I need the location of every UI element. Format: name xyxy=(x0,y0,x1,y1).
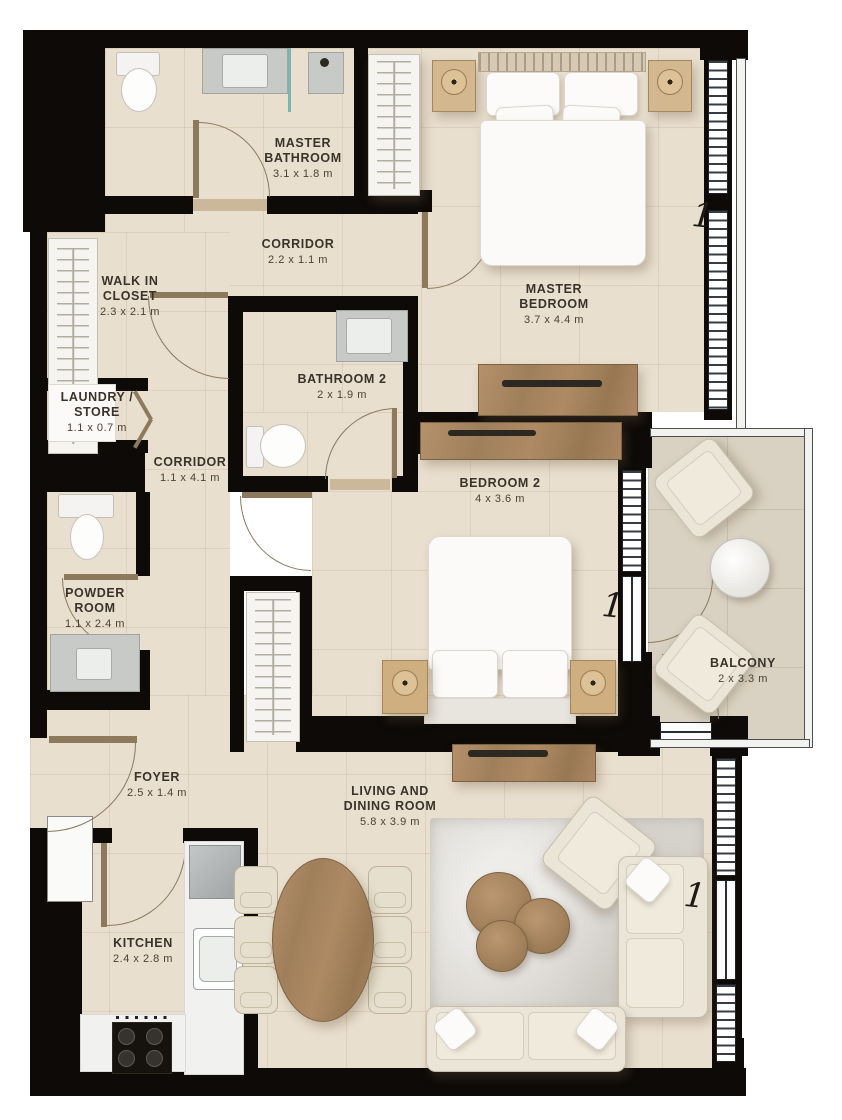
railing-balcony-top xyxy=(650,428,810,437)
label-corridor-main: CORRIDOR 1.1 x 4.1 m xyxy=(154,455,227,484)
wall-bottom-left-block xyxy=(30,896,82,1096)
wall-mbath-bottom-left xyxy=(105,196,193,214)
window-master-bedroom-upper xyxy=(708,60,728,194)
wardrobe-hall-closet xyxy=(246,592,300,742)
railing-right-master xyxy=(736,58,746,430)
room-dims: 2 x 1.9 m xyxy=(297,389,386,401)
bed-master-headboard xyxy=(478,52,646,72)
stove-knobs xyxy=(116,1016,168,1019)
room-name: MASTER BEDROOM xyxy=(504,282,604,312)
room-name: CORRIDOR xyxy=(262,237,335,252)
wall-powder-right-upper xyxy=(136,492,150,576)
window-master-bedroom-lower xyxy=(708,210,728,410)
window-living-lower xyxy=(716,984,736,1062)
room-dims: 2.2 x 1.1 m xyxy=(262,254,335,266)
room-dims: 3.7 x 4.4 m xyxy=(504,314,604,326)
dining-table xyxy=(272,858,374,1022)
window-bedroom2 xyxy=(622,470,642,572)
shower-head-icon xyxy=(320,58,329,67)
balcony-table xyxy=(710,538,770,598)
room-dims: 5.8 x 3.9 m xyxy=(333,816,447,828)
window-tag-master: 1 xyxy=(690,195,716,237)
toilet-bathroom2-bowl xyxy=(260,424,306,468)
lamp-master-right xyxy=(657,69,683,95)
label-master-bedroom: MASTER BEDROOM 3.7 x 4.4 m xyxy=(504,282,604,326)
sink-master xyxy=(222,54,268,88)
shower-glass xyxy=(288,48,291,112)
dining-chair-left-1 xyxy=(234,866,278,914)
tv-console-slab xyxy=(468,750,548,757)
dining-chair-right-2 xyxy=(368,916,412,964)
wall-closet-left xyxy=(230,576,244,752)
dining-chair-right-1 xyxy=(368,866,412,914)
room-name: BALCONY xyxy=(710,656,776,671)
room-dims: 1.1 x 0.7 m xyxy=(59,422,135,434)
wall-bathroom2-bottom-left xyxy=(228,476,328,492)
room-dims: 1.1 x 2.4 m xyxy=(56,618,134,630)
stove-burner-1 xyxy=(118,1028,135,1045)
label-master-bathroom: MASTER BATHROOM 3.1 x 1.8 m xyxy=(253,136,353,180)
room-dims: 1.1 x 4.1 m xyxy=(154,472,227,484)
dresser-master-tv xyxy=(502,380,602,387)
dresser-bedroom2-tv xyxy=(448,430,536,436)
dresser-master xyxy=(478,364,638,416)
dining-chair-right-3 xyxy=(368,966,412,1014)
wall-top-left-block xyxy=(23,30,105,232)
room-name: LAUNDRY / STORE xyxy=(59,390,135,420)
stove-burner-2 xyxy=(146,1028,163,1045)
room-name: BATHROOM 2 xyxy=(297,372,386,387)
window-tag-bedroom2: 1 xyxy=(600,585,626,627)
bed2-pillow-1 xyxy=(432,650,498,698)
sink-bathroom2 xyxy=(346,318,392,354)
room-name: MASTER BATHROOM xyxy=(253,136,353,166)
room-dims: 3.1 x 1.8 m xyxy=(253,168,353,180)
railing-balcony-right xyxy=(804,428,813,748)
coffee-table-lobe-3 xyxy=(476,920,528,972)
lamp-bed2-right xyxy=(580,670,606,696)
door-arc-bedroom2 xyxy=(240,496,311,571)
label-walk-in-closet: WALK IN CLOSET 2.3 x 2.1 m xyxy=(91,274,169,318)
wall-living-balcony-right xyxy=(710,716,748,756)
room-name: KITCHEN xyxy=(113,936,173,951)
label-balcony: BALCONY 2 x 3.3 m xyxy=(710,656,776,685)
room-name: FOYER xyxy=(127,770,187,785)
stove-burner-4 xyxy=(146,1050,163,1067)
room-dims: 2 x 3.3 m xyxy=(710,673,776,685)
wall-bottom xyxy=(230,1068,746,1096)
room-dims: 2.3 x 2.1 m xyxy=(91,306,169,318)
dresser-bedroom2 xyxy=(420,422,622,460)
label-bathroom2: BATHROOM 2 2 x 1.9 m xyxy=(297,372,386,401)
room-dims: 2.4 x 2.8 m xyxy=(113,953,173,965)
dining-chair-left-3 xyxy=(234,966,278,1014)
window-living-center-panel xyxy=(716,880,736,980)
label-foyer: FOYER 2.5 x 1.4 m xyxy=(127,770,187,799)
wall-powder-top-block xyxy=(47,450,145,492)
threshold-master-bathroom xyxy=(193,199,267,211)
wall-bathroom2-left xyxy=(228,296,243,492)
label-bedroom2: BEDROOM 2 4 x 3.6 m xyxy=(459,476,540,505)
lamp-bed2-left xyxy=(392,670,418,696)
threshold-bathroom2 xyxy=(330,479,390,490)
window-tag-living: 1 xyxy=(682,875,708,917)
room-name: WALK IN CLOSET xyxy=(91,274,169,304)
room-name: POWDER ROOM xyxy=(56,586,134,616)
label-living-dining: LIVING AND DINING ROOM 5.8 x 3.9 m xyxy=(333,784,447,828)
bed2-pillow-2 xyxy=(502,650,568,698)
door-entry xyxy=(49,736,137,743)
wall-top xyxy=(65,30,737,48)
kitchen-sink-basin xyxy=(199,936,237,982)
room-name: CORRIDOR xyxy=(154,455,227,470)
sink-powder xyxy=(76,648,112,680)
label-powder-room: POWDER ROOM 1.1 x 2.4 m xyxy=(56,586,134,630)
wardrobe-master-bedroom xyxy=(368,54,420,196)
room-dims: 2.5 x 1.4 m xyxy=(127,787,187,799)
room-dims: 4 x 3.6 m xyxy=(459,493,540,505)
wall-left xyxy=(30,230,47,738)
lamp-master-left xyxy=(441,69,467,95)
wall-powder-bottom xyxy=(30,690,150,710)
label-corridor-top: CORRIDOR 2.2 x 1.1 m xyxy=(262,237,335,266)
label-kitchen: KITCHEN 2.4 x 2.8 m xyxy=(113,936,173,965)
railing-balcony-bottom xyxy=(650,739,810,748)
room-name: LIVING AND DINING ROOM xyxy=(333,784,447,814)
window-living-upper xyxy=(716,758,736,876)
toilet-master-bowl xyxy=(121,68,157,112)
stove-burner-3 xyxy=(118,1050,135,1067)
bed-master-duvet xyxy=(480,120,646,266)
room-name: BEDROOM 2 xyxy=(459,476,540,491)
sofa-right-cushion-2 xyxy=(626,938,684,1008)
floor-plan: MASTER BATHROOM 3.1 x 1.8 m CORRIDOR 2.2… xyxy=(0,0,842,1120)
bed2-headboard xyxy=(424,698,576,724)
wall-living-balcony-left xyxy=(650,716,660,756)
toilet-powder-bowl xyxy=(70,514,104,560)
label-laundry-store: LAUNDRY / STORE 1.1 x 0.7 m xyxy=(59,390,135,434)
